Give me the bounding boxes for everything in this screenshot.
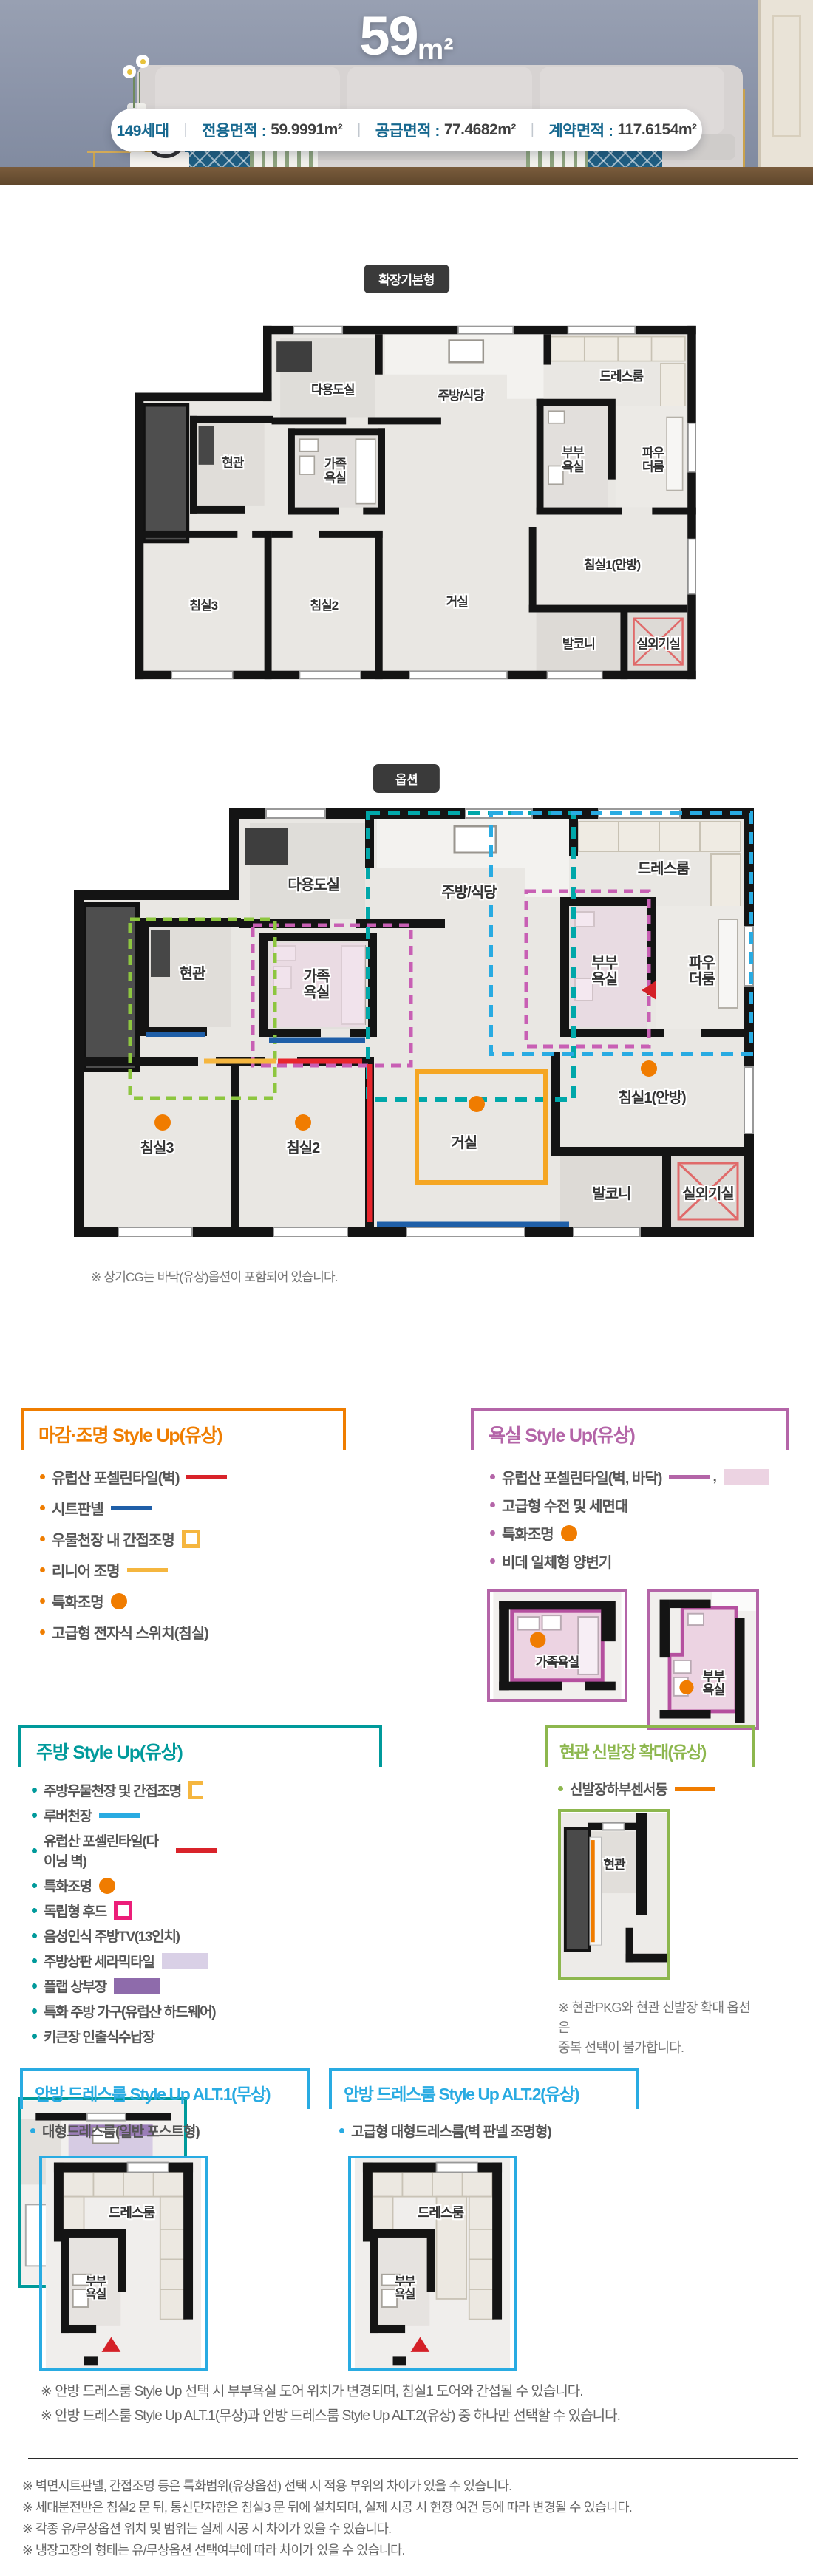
list-item: 유럽산 포셀린타일(벽, 바닥), — [490, 1466, 789, 1488]
section-title: 현관 신발장 확대(유상) — [545, 1725, 755, 1767]
blue-line-swatch — [111, 1506, 152, 1510]
badge-option: 옵션 — [373, 764, 440, 793]
pink-tile-swatch — [724, 1469, 769, 1485]
unit-info-bar: 149세대 | 전용면적 : 59.9991m² | 공급면적 : 77.468… — [111, 109, 702, 151]
page-root: 59m² 149세대 | 전용면적 : 59.9991m² | 공급면적 : 7… — [0, 0, 813, 2576]
supply-area-label: 공급면적 : — [375, 119, 440, 141]
plan-cg-note: ※ 상기CG는 바닥(유상)옵션이 포함되어 있습니다. — [91, 1267, 338, 1285]
purple-swatch — [114, 1978, 160, 1994]
room-label-living: 거실 — [446, 596, 468, 609]
entry-label: 현관 — [603, 1858, 625, 1871]
divider-pipe: | — [357, 122, 360, 138]
orange-dot-swatch — [561, 1525, 577, 1541]
note-line: ※ 냉장고장의 형태는 유/무상옵션 선택여부에 따라 차이가 있을 수 있습니… — [22, 2540, 632, 2561]
room-label-dressroom: 드레스룸 — [638, 862, 690, 878]
divider-pipe: | — [531, 122, 534, 138]
list-item: 신발장하부센서등 — [558, 1779, 755, 1799]
pink-square-swatch — [114, 1901, 132, 1920]
room-label-family-bath: 가족 욕실 — [304, 970, 330, 1001]
red-line-swatch — [186, 1475, 227, 1479]
family-bath-image: 가족욕실 — [487, 1589, 627, 1702]
red-line-swatch — [176, 1848, 217, 1853]
exclusive-area-label: 전용면적 : — [202, 119, 266, 141]
room-label-ac-room: 실외기실 — [682, 1188, 734, 1204]
badge-basic-type: 확장기본형 — [364, 265, 449, 293]
floorplan-basic: 다용도실 주방/식당 드레스룸 현관 가족 욕실 부부 욕실 파우 더룸 침실1… — [117, 324, 702, 681]
list-item: 고급형 수전 및 세면대 — [490, 1494, 789, 1516]
family-bath-label: 가족욕실 — [536, 1656, 579, 1669]
master-bath-image: 부부 욕실 — [647, 1589, 759, 1730]
room-label-living: 거실 — [451, 1136, 477, 1152]
dressroom-label: 드레스룸 — [109, 2206, 154, 2220]
yellow-square-swatch — [182, 1530, 200, 1548]
room-label-bed1: 침실1(안방) — [619, 1091, 686, 1108]
bottom-notes: ※ 벽면시트판넬, 간접조명 등은 특화범위(유상옵션) 선택 시 적용 부위의… — [22, 2476, 632, 2561]
section-entrance: 현관 신발장 확대(유상) 신발장하부센서등 현관 ※ 현관PKG와 — [545, 1725, 755, 2058]
contract-area-value: 117.6154m² — [617, 121, 696, 139]
room-label-master-bath: 부부 욕실 — [562, 447, 583, 474]
section-finish-lighting: 마감·조명 Style Up(유상) 유럽산 포셀린타일(벽) 시트판넬 우물천… — [21, 1408, 346, 1652]
note-line: ※ 각종 유/무상옵션 위치 및 범위는 실제 시공 시 차이가 있을 수 있습… — [22, 2518, 632, 2540]
list-item: 대형드레스룸(일반 포스트형) — [30, 2121, 310, 2141]
room-label-bed3: 침실3 — [140, 1141, 174, 1157]
room-label-master-bath: 부부 욕실 — [591, 956, 617, 988]
orange-dot-swatch — [111, 1593, 127, 1609]
section-title: 안방 드레스룸 Style Up ALT.2(유상) — [329, 2068, 639, 2109]
list-item: 유럽산 포셀린타일(다이닝 벽) — [32, 1830, 217, 1870]
room-label-bed1: 침실1(안방) — [584, 559, 640, 572]
master-bath-label: 부부 욕실 — [395, 2276, 415, 2302]
room-label-bed2: 침실2 — [310, 599, 338, 613]
room-label-utility: 다용도실 — [311, 384, 355, 397]
room-label-powder: 파우 더룸 — [689, 956, 715, 988]
skyblue-line-swatch — [99, 1813, 140, 1818]
dressroom-alt1-image: 드레스룸 부부 욕실 — [39, 2156, 208, 2371]
section-kitchen: 주방 Style Up(유상) 주방우물천장 및 간접조명 루버천장 유럽산 포… — [18, 1725, 382, 2024]
bottom-divider — [28, 2458, 798, 2459]
room-label-bed2: 침실2 — [286, 1141, 319, 1157]
contract-area-label: 계약면적 : — [548, 119, 613, 141]
entrance-option-image: 현관 — [558, 1809, 670, 1980]
room-label-powder: 파우 더룸 — [642, 447, 664, 474]
list-item: 비데 일체형 양변기 — [490, 1550, 789, 1572]
shoe-cabinet-sensor-light-line — [591, 1840, 595, 1942]
section-title: 마감·조명 Style Up(유상) — [21, 1408, 346, 1450]
room-label-kitchen: 주방/식당 — [438, 389, 484, 403]
list-item: 주방상판 세라믹타일 — [32, 1951, 217, 1971]
room-label-balcony: 발코니 — [562, 638, 595, 651]
area-number: 59 — [359, 5, 417, 67]
hero-banner: 59m² — [0, 0, 813, 185]
list-item: 플랩 상부장 — [32, 1976, 217, 1996]
supply-area-value: 77.4682m² — [444, 121, 516, 139]
list-item: 독립형 후드 — [32, 1901, 217, 1921]
yellow-line-swatch — [127, 1568, 168, 1572]
floor-lamp-decor — [743, 89, 745, 168]
wood-floor-decor — [0, 167, 813, 185]
room-label-entry: 현관 — [222, 457, 243, 470]
list-item: 유럽산 포셀린타일(벽) — [40, 1466, 346, 1488]
list-item: 리니어 조명 — [40, 1559, 346, 1581]
room-label-entry: 현관 — [180, 967, 205, 984]
room-label-ac-room: 실외기실 — [636, 638, 680, 651]
list-item: 키큰장 인출식수납장 — [32, 2026, 217, 2046]
section-dressroom-alt2: 안방 드레스룸 Style Up ALT.2(유상) 고급형 대형드레스룸(벽 … — [329, 2068, 639, 2371]
list-item: 특화조명 — [490, 1522, 789, 1544]
floorplan-option: 다용도실 주방/식당 드레스룸 현관 가족 욕실 부부 욕실 파우 더룸 침실1… — [52, 805, 761, 1240]
section-title: 욕실 Style Up(유상) — [471, 1408, 789, 1450]
list-item: 특화조명 — [32, 1875, 217, 1895]
note-line: ※ 안방 드레스룸 Style Up 선택 시 부부욕실 도어 위치가 변경되며… — [41, 2379, 620, 2404]
master-bath-label: 부부 욕실 — [86, 2276, 106, 2302]
room-label-dressroom: 드레스룸 — [599, 369, 643, 383]
room-label-family-bath: 가족 욕실 — [324, 458, 346, 485]
entrance-note: ※ 현관PKG와 현관 신발장 확대 옵션은 중복 선택이 불가합니다. — [558, 1998, 755, 2058]
list-item: 특화조명 — [40, 1590, 346, 1612]
divider-pipe: | — [184, 122, 187, 138]
section-dressroom-alt1: 안방 드레스룸 Style Up ALT.1(무상) 대형드레스룸(일반 포스트… — [20, 2068, 310, 2371]
room-label-balcony: 발코니 — [592, 1188, 630, 1204]
list-item: 루버천장 — [32, 1805, 217, 1825]
dressroom-alt2-image: 드레스룸 부부 욕실 — [348, 2156, 517, 2371]
note-line: ※ 안방 드레스룸 Style Up ALT.1(무상)과 안방 드레스룸 St… — [41, 2404, 620, 2428]
room-label-bed3: 침실3 — [189, 599, 217, 613]
special-light-dot — [679, 1680, 693, 1694]
orange-line-swatch — [675, 1787, 715, 1791]
list-item: 우물천장 내 간접조명 — [40, 1528, 346, 1550]
yellow-bracket-swatch — [188, 1781, 203, 1799]
note-line: ※ 세대분전반은 침실2 문 뒤, 통신단자함은 침실3 문 뒤에 설치되며, … — [22, 2497, 632, 2518]
list-item: 주방우물천장 및 간접조명 — [32, 1780, 217, 1800]
special-light-dot — [530, 1632, 545, 1648]
dressroom-alt-notes: ※ 안방 드레스룸 Style Up 선택 시 부부욕실 도어 위치가 변경되며… — [41, 2379, 620, 2428]
area-title: 59m² — [0, 4, 813, 67]
list-item: 고급형 전자식 스위치(침실) — [40, 1621, 346, 1643]
room-label-kitchen: 주방/식당 — [441, 886, 496, 902]
list-item: 특화 주방 가구(유럽산 하드웨어) — [32, 2001, 217, 2021]
note-line: ※ 벽면시트판넬, 간접조명 등은 특화범위(유상옵션) 선택 시 적용 부위의… — [22, 2476, 632, 2497]
master-bath-label: 부부 욕실 — [703, 1670, 724, 1697]
area-unit: m² — [418, 33, 454, 66]
purple-line-swatch — [669, 1475, 710, 1479]
section-title: 주방 Style Up(유상) — [18, 1725, 382, 1767]
dressroom-label: 드레스룸 — [418, 2206, 463, 2220]
lavender-swatch — [162, 1953, 208, 1969]
list-item: 시트판넬 — [40, 1497, 346, 1519]
orange-dot-swatch — [99, 1878, 115, 1894]
list-item: 음성인식 주방TV(13인치) — [32, 1926, 217, 1946]
room-label-utility: 다용도실 — [288, 879, 339, 895]
exclusive-area-value: 59.9991m² — [271, 121, 342, 139]
section-bath: 욕실 Style Up(유상) 유럽산 포셀린타일(벽, 바닥), 고급형 수전… — [471, 1408, 789, 1730]
section-title: 안방 드레스룸 Style Up ALT.1(무상) — [20, 2068, 310, 2109]
list-item: 고급형 대형드레스룸(벽 판넬 조명형) — [339, 2121, 639, 2141]
households-count: 149세대 — [116, 119, 169, 141]
